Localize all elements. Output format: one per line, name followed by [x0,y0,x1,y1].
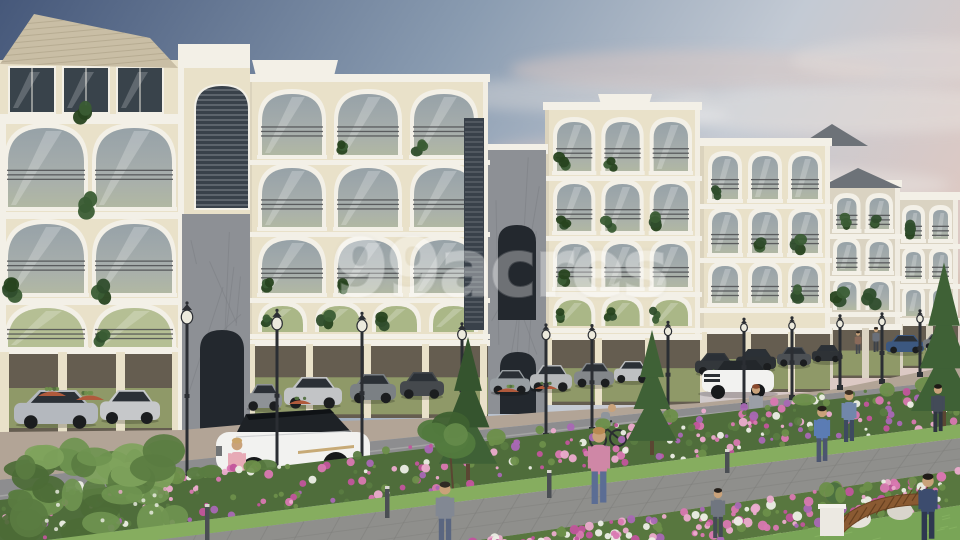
building-3 [543,94,702,405]
bollard-light [205,504,210,540]
building-1 [0,10,250,434]
corner-bush [0,434,188,540]
bollard-light [725,449,730,473]
bollard-light [385,486,390,518]
building-2 [246,60,490,418]
bollard-light [547,470,552,498]
render-scene [0,0,960,540]
property-exterior-render: 99acres [0,0,960,540]
